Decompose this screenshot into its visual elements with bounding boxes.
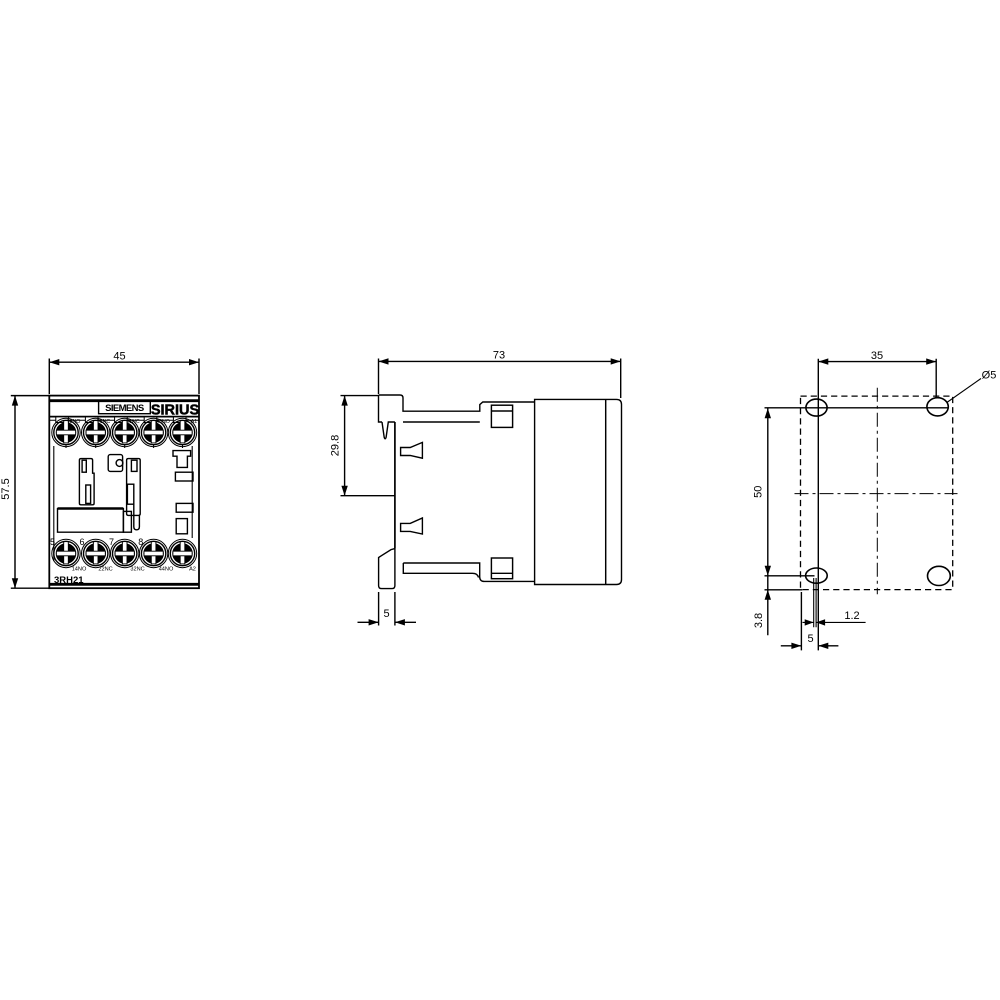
svg-text:14NO: 14NO [72, 567, 87, 573]
svg-text:A2: A2 [189, 567, 196, 573]
svg-text:5: 5 [807, 633, 813, 645]
svg-text:44NO: 44NO [159, 567, 174, 573]
svg-text:50: 50 [753, 486, 765, 498]
svg-text:22NC: 22NC [98, 567, 112, 573]
svg-text:SIEMENS: SIEMENS [105, 403, 144, 414]
svg-text:57.5: 57.5 [0, 478, 12, 499]
svg-text:8: 8 [138, 537, 143, 547]
svg-text:1.2: 1.2 [844, 610, 859, 622]
svg-text:3.8: 3.8 [753, 613, 765, 628]
svg-text:45: 45 [113, 351, 125, 363]
svg-text:5: 5 [383, 608, 389, 620]
svg-text:32NC: 32NC [130, 567, 144, 573]
svg-text:35: 35 [871, 350, 883, 362]
svg-text:29.8: 29.8 [330, 435, 342, 456]
svg-text:Ø5: Ø5 [982, 370, 997, 382]
svg-text:73: 73 [493, 350, 505, 362]
